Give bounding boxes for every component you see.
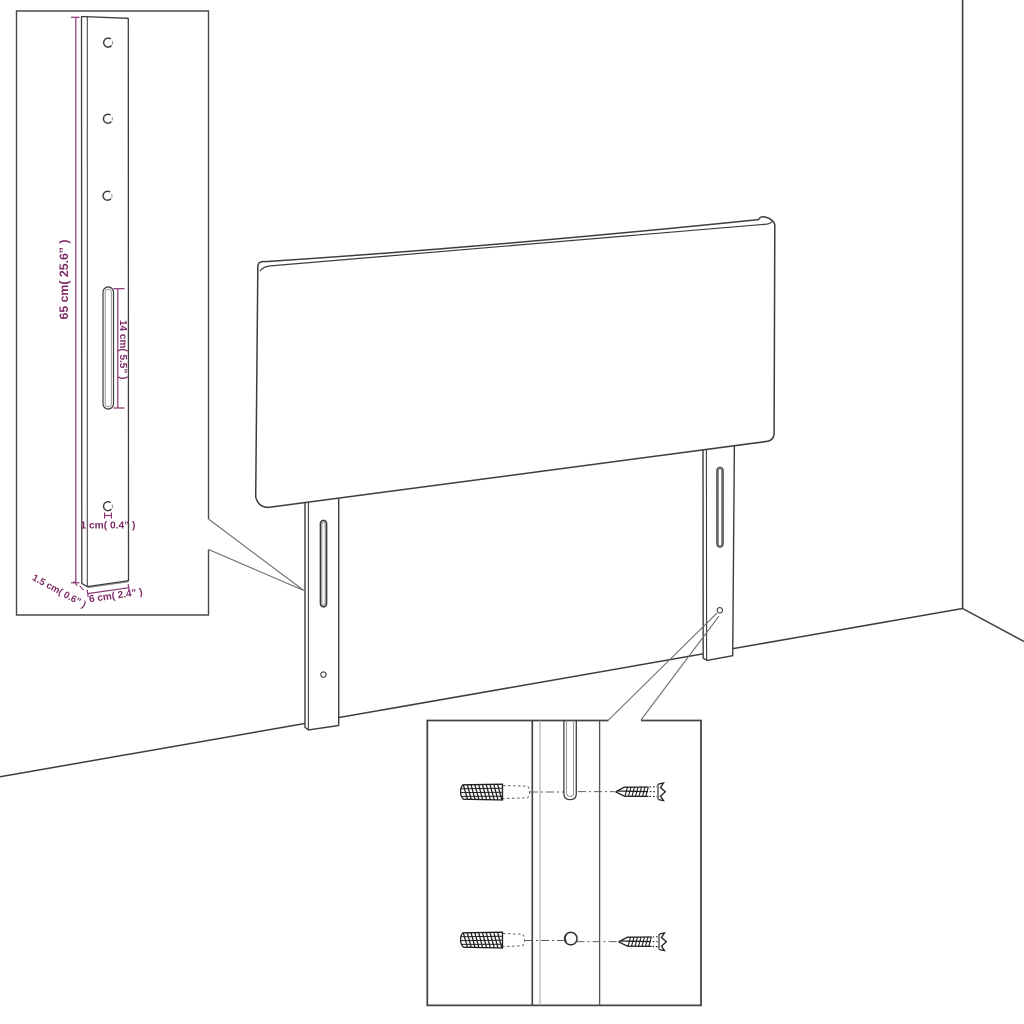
svg-text:14 cm( 5.5” ): 14 cm( 5.5” ) bbox=[117, 320, 128, 379]
svg-text:1 cm( 0.4” ): 1 cm( 0.4” ) bbox=[81, 521, 136, 532]
svg-text:65 cm( 25.6” ): 65 cm( 25.6” ) bbox=[57, 240, 71, 320]
